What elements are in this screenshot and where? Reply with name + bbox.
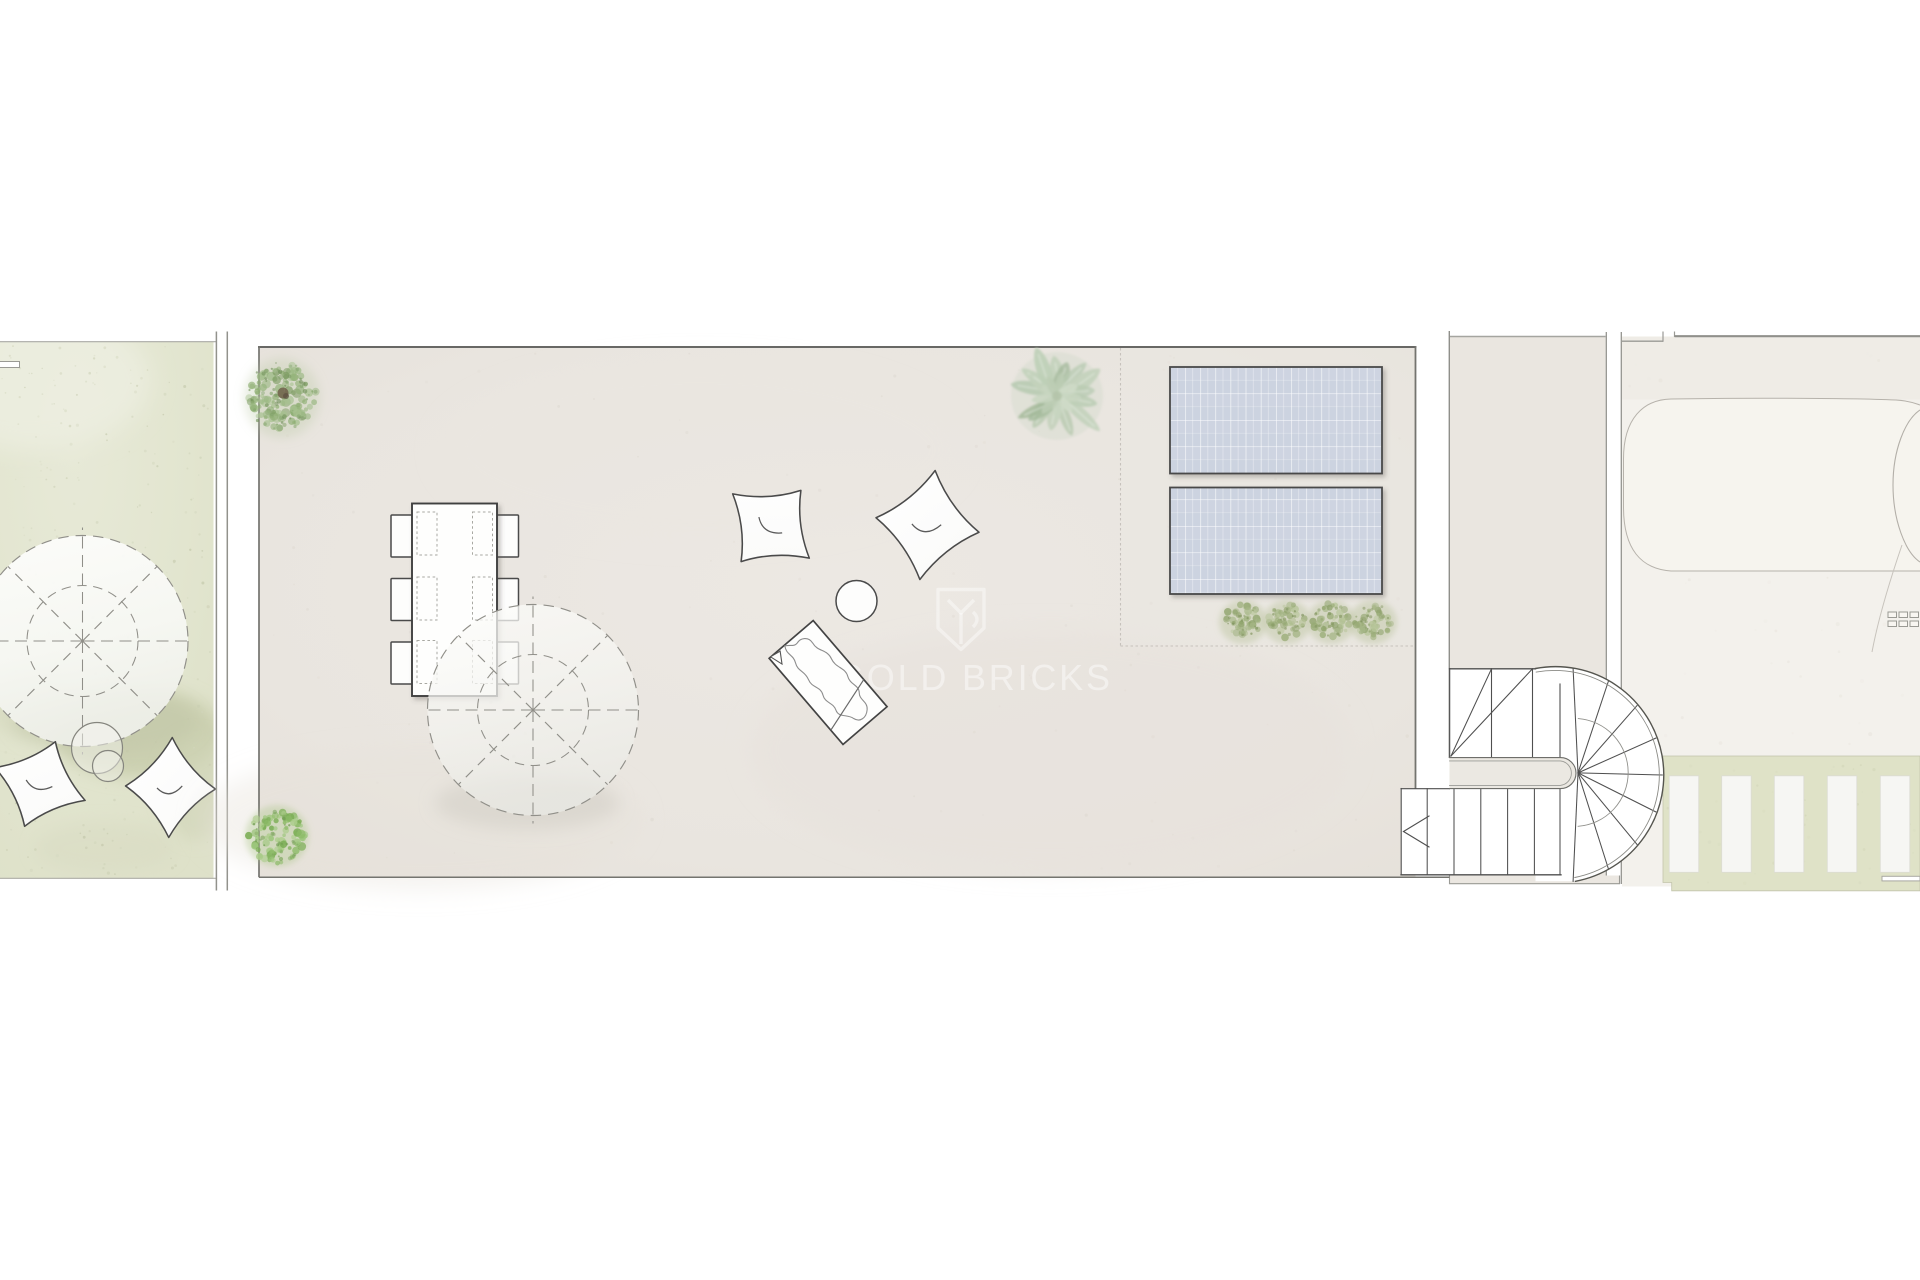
svg-text:GOLD BRICKS: GOLD BRICKS (836, 657, 1110, 698)
